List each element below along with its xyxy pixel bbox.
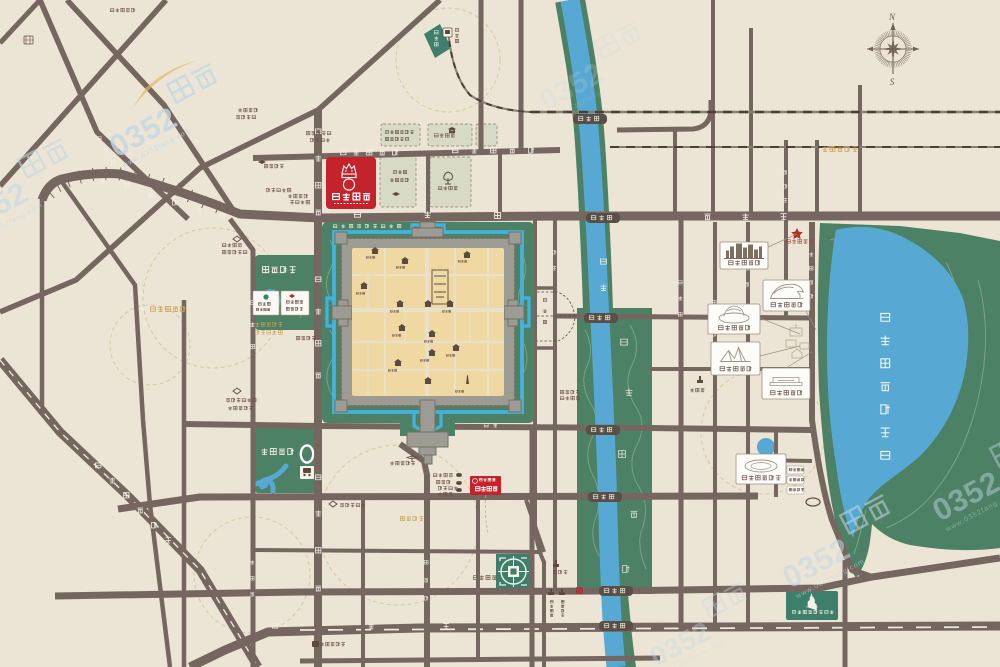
svg-text:N: N [888, 12, 896, 22]
svg-text:S: S [890, 77, 895, 87]
